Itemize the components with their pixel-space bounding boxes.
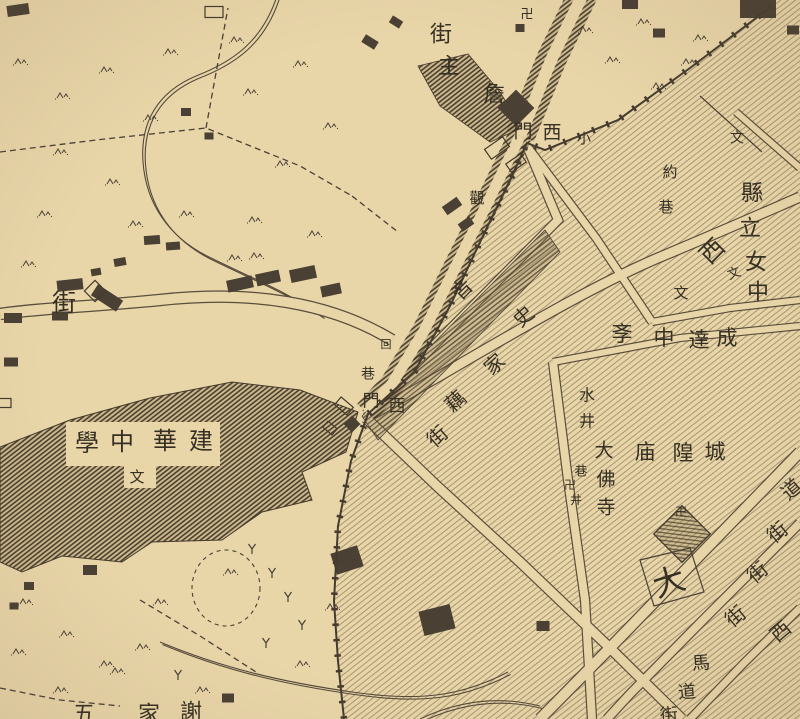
building <box>83 565 97 575</box>
building <box>144 235 161 245</box>
map-label: 約 <box>662 164 677 181</box>
map-label: 斈 <box>612 322 633 346</box>
building <box>205 133 214 140</box>
building <box>222 694 234 703</box>
map-label: 庙 <box>635 440 656 464</box>
map-label: 卍 <box>564 478 576 492</box>
map-label: 回 <box>381 338 392 351</box>
map-label: 文 <box>730 131 744 147</box>
building <box>537 621 550 631</box>
map-label: 西 <box>542 123 561 144</box>
map-label: 門 <box>363 392 380 411</box>
map-label: 詹 <box>483 82 505 107</box>
map-label: 家 <box>138 702 160 719</box>
map-label: 巷 <box>574 464 587 479</box>
map-label: 巷 <box>361 367 375 383</box>
map-label: 城 <box>705 440 726 464</box>
building <box>653 29 665 38</box>
map-label: 觀 <box>469 190 484 207</box>
map-label: 文 <box>673 285 688 302</box>
map-label: 女 <box>745 250 767 275</box>
map-label: 五 <box>73 702 95 719</box>
map-label: 井 <box>570 493 582 507</box>
building <box>24 582 34 590</box>
map-label: 華 <box>153 428 177 455</box>
building <box>4 358 18 367</box>
building <box>181 108 191 116</box>
map-label: 佛 <box>596 469 615 491</box>
map-label: 隍 <box>673 441 694 465</box>
map-label: 街 <box>52 290 76 317</box>
map-canvas: 卍街主詹門西小觀約巷文縣立女中西文文成達中斈音史家藕街回巷門西街建華中學文城隍庙… <box>0 0 800 719</box>
map-label: 立 <box>739 216 761 241</box>
map-label: 街 <box>430 22 452 47</box>
historical-city-map: 卍街主詹門西小觀約巷文縣立女中西文文成達中斈音史家藕街回巷門西街建華中學文城隍庙… <box>0 0 800 719</box>
map-label: 門 <box>513 122 532 143</box>
map-label: 卍 <box>675 505 687 519</box>
map-label: 街 <box>659 704 679 719</box>
building <box>166 242 181 251</box>
map-label: 西 <box>389 397 406 416</box>
map-label: 建 <box>189 428 213 455</box>
map-label: 小 <box>577 132 591 148</box>
map-label: 卍 <box>520 7 533 22</box>
building <box>787 26 799 35</box>
map-label: 主 <box>438 54 460 79</box>
building <box>4 313 22 323</box>
map-label: 中 <box>747 280 769 305</box>
map-label: 大 <box>594 440 613 462</box>
map-label: 達 <box>689 328 710 352</box>
map-label: 縣 <box>741 181 763 206</box>
map-label: 道 <box>677 681 697 702</box>
map-label: 中 <box>654 326 675 350</box>
building <box>10 603 19 610</box>
map-label: 文 <box>129 469 144 486</box>
map-label: 馬 <box>691 652 711 673</box>
map-label: 謝 <box>180 700 202 719</box>
map-label: 成 <box>717 326 738 350</box>
map-label: 水 <box>579 387 595 405</box>
building <box>516 24 525 32</box>
map-label: 學 <box>75 430 99 457</box>
map-label: 寺 <box>596 497 615 519</box>
map-label: 巷 <box>658 199 673 216</box>
map-label: 中 <box>110 429 134 456</box>
building <box>622 0 638 9</box>
map-label: 井 <box>579 413 595 431</box>
